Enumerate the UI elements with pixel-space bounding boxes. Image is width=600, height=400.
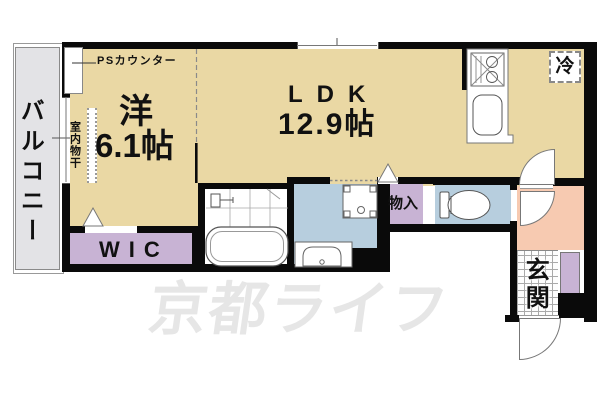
wall-bath-right: [287, 183, 294, 272]
wall-storage-top: [398, 177, 433, 184]
wall-corner-patch: [352, 248, 390, 272]
wall-toilet-top: [433, 177, 520, 185]
wall-bath-left: [198, 183, 205, 226]
wall-genkan-block: [558, 293, 584, 318]
refrigerator-space: 冷: [549, 51, 581, 83]
wall-washroom-top: [287, 177, 330, 184]
wall-under-storage: [377, 224, 517, 232]
storage-door-opening: [378, 177, 398, 184]
ldk-name: LDK: [288, 82, 379, 107]
watermark: 京都ライフ: [144, 262, 456, 346]
wall-genkan-left-a: [510, 177, 517, 190]
western-room-name: 洋: [119, 95, 153, 131]
wall-bath-top: [199, 183, 294, 189]
wall-ldk-hall: [553, 178, 584, 186]
wall-kitchen-stub: [462, 42, 474, 90]
wic-door-opening: [85, 226, 137, 233]
wall-wic-top-b: [137, 226, 198, 233]
shoe-cabinet: [560, 252, 580, 295]
room-bathroom: [204, 188, 288, 266]
ldk-area: 12.9帖: [278, 109, 376, 141]
entrance-label: 玄関: [522, 257, 547, 313]
balcony-label: バルコニー: [17, 98, 42, 248]
wall-genkan-left-b: [510, 221, 517, 318]
western-room-area: 6.1帖: [95, 129, 174, 164]
ps-counter-label: PSカウンター: [97, 56, 177, 68]
floor-plan: 京都ライフ 冷: [0, 0, 600, 400]
wall-wic-top-a: [70, 226, 85, 233]
storage-label: 物入: [388, 196, 418, 212]
refrigerator-label: 冷: [555, 57, 574, 77]
entrance-door-swing: [519, 318, 561, 360]
wic-label: WIC: [99, 238, 169, 261]
window-top: [297, 42, 379, 49]
wall-wic-right: [192, 226, 205, 272]
wall-right: [584, 42, 597, 322]
ps-counter-box: [64, 47, 83, 94]
indoor-drying-label: 室内物干: [68, 121, 80, 169]
wall-genkan-bottom: [505, 315, 519, 322]
room-toilet: [435, 184, 511, 224]
wall-bottom: [62, 264, 390, 272]
